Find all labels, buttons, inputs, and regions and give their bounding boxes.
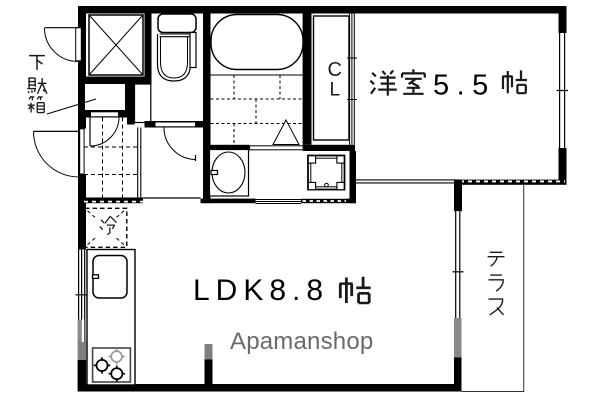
svg-text:LDK8.8: LDK8.8	[193, 274, 329, 307]
svg-text:5.5: 5.5	[433, 70, 496, 102]
svg-text:Apamanshop: Apamanshop	[230, 328, 373, 355]
svg-text:L: L	[330, 80, 341, 101]
svg-text:C: C	[328, 59, 342, 81]
